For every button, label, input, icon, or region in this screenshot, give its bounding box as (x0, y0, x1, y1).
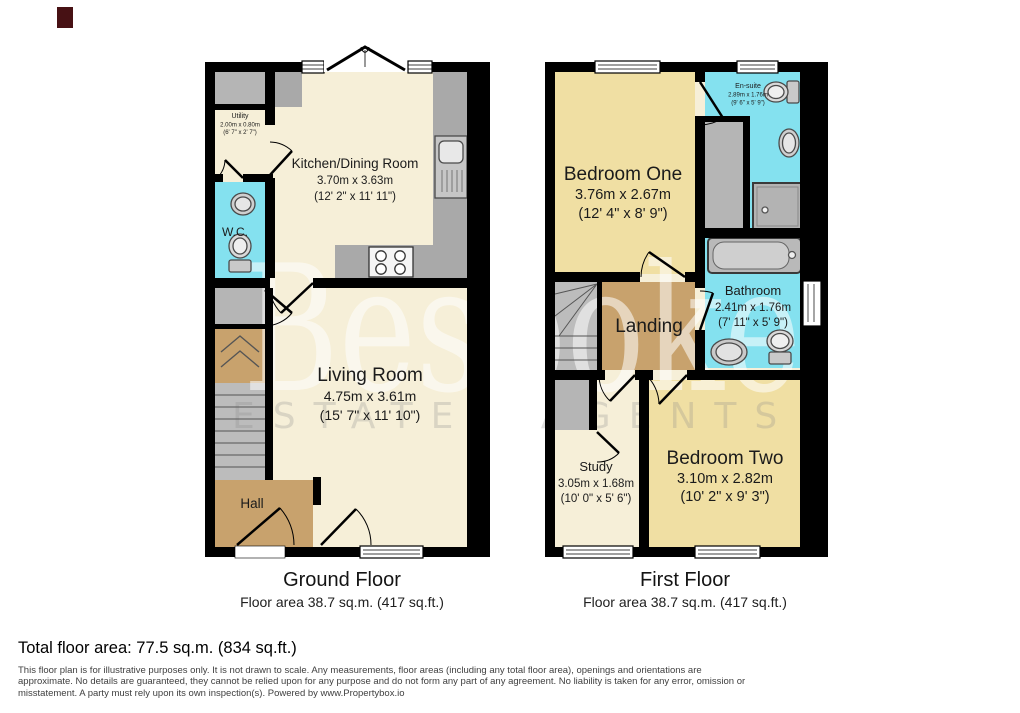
hall-label: Hall (240, 496, 263, 511)
bedroom-two-metric: 3.10m x 2.82m (677, 471, 773, 487)
disclaimer: This floor plan is for illustrative purp… (18, 665, 1008, 699)
bedroom-one-label: Bedroom One (564, 164, 682, 185)
study-metric: 3.05m x 1.68m (558, 478, 634, 490)
logo-mark (57, 7, 73, 28)
shower-icon (753, 183, 802, 230)
bedroom-two-imperial: (10' 2" x 9' 3") (680, 489, 769, 505)
bathroom-metric: 2.41m x 1.76m (715, 302, 791, 314)
ensuite-toilet-icon (764, 81, 799, 103)
ground-floor-area: Floor area 38.7 sq.m. (417 sq.ft.) (192, 594, 492, 610)
store-recess (215, 72, 265, 104)
kitchen-sink-icon (435, 136, 467, 198)
landing-cupboard (555, 380, 589, 430)
utility-imperial: (6' 7" x 2' 7") (223, 130, 257, 136)
ensuite-imperial: (9' 6" x 5' 9") (731, 101, 765, 107)
hob-icon (369, 247, 413, 277)
kitchen-window-left (302, 61, 324, 73)
kitchen-bay-window (324, 47, 408, 72)
study-window (563, 546, 633, 558)
bedroom-one-window (595, 61, 660, 73)
total-floor-area: Total floor area: 77.5 sq.m. (834 sq.ft.… (18, 639, 297, 658)
kitchen-window-right (408, 61, 432, 73)
landing-label: Landing (615, 316, 683, 337)
study-imperial: (10' 0" x 5' 6") (561, 493, 632, 505)
first-floor-title: First Floor (535, 569, 835, 592)
bathroom-sink-icon (711, 339, 747, 365)
bedroom-one-imperial: (12' 4" x 8' 9") (578, 206, 667, 222)
living-label: Living Room (317, 365, 423, 386)
utility-metric: 2.00m x 0.80m (220, 123, 260, 129)
bathroom-toilet-icon (767, 330, 793, 364)
bathroom-imperial: (7' 11" x 5' 9") (718, 317, 788, 329)
bathroom-label: Bathroom (725, 283, 781, 298)
wc-toilet-icon (229, 234, 251, 272)
living-imperial: (15' 7" x 11' 10") (320, 407, 421, 423)
utility-label: Utility (231, 113, 249, 120)
wc-sink-icon (231, 193, 255, 215)
bedroom-two-label: Bedroom Two (667, 448, 784, 469)
living-room-window (360, 546, 423, 558)
ensuite-sink-icon (779, 129, 799, 157)
disclaimer-line-2: approximate. No details are guaranteed, … (18, 676, 1008, 687)
kitchen-label: Kitchen/Dining Room (292, 156, 419, 171)
ensuite-label: En-suite (735, 83, 761, 90)
bedroom-one-metric: 3.76m x 2.67m (575, 187, 671, 203)
bedroom-two-window (695, 546, 760, 558)
kitchen-metric: 3.70m x 3.63m (317, 175, 393, 187)
ground-floor-title: Ground Floor (192, 569, 492, 592)
disclaimer-line-3: misstatement. A party must rely upon its… (18, 688, 1008, 699)
first-floor-plan: Bespoke ESTATE AGENTS (535, 40, 838, 570)
disclaimer-line-1: This floor plan is for illustrative purp… (18, 665, 1008, 676)
living-metric: 4.75m x 3.61m (324, 388, 417, 404)
study-label: Study (579, 459, 613, 474)
kitchen-counter-top (273, 72, 302, 107)
bath-icon (708, 238, 801, 273)
first-floor-area: Floor area 38.7 sq.m. (417 sq.ft.) (535, 594, 835, 610)
hall-floor (215, 480, 313, 547)
bathroom-window (803, 281, 821, 326)
ground-floor-plan: Bespoke ESTATE AGENTS (195, 40, 505, 570)
ensuite-metric: 2.89m x 1.76m (728, 93, 768, 99)
wc-label: W.C. (222, 225, 248, 239)
ensuite-window (737, 61, 778, 73)
floorplan-page: Bespoke ESTATE AGENTS (0, 0, 1020, 713)
kitchen-imperial: (12' 2" x 11' 11") (314, 191, 396, 203)
